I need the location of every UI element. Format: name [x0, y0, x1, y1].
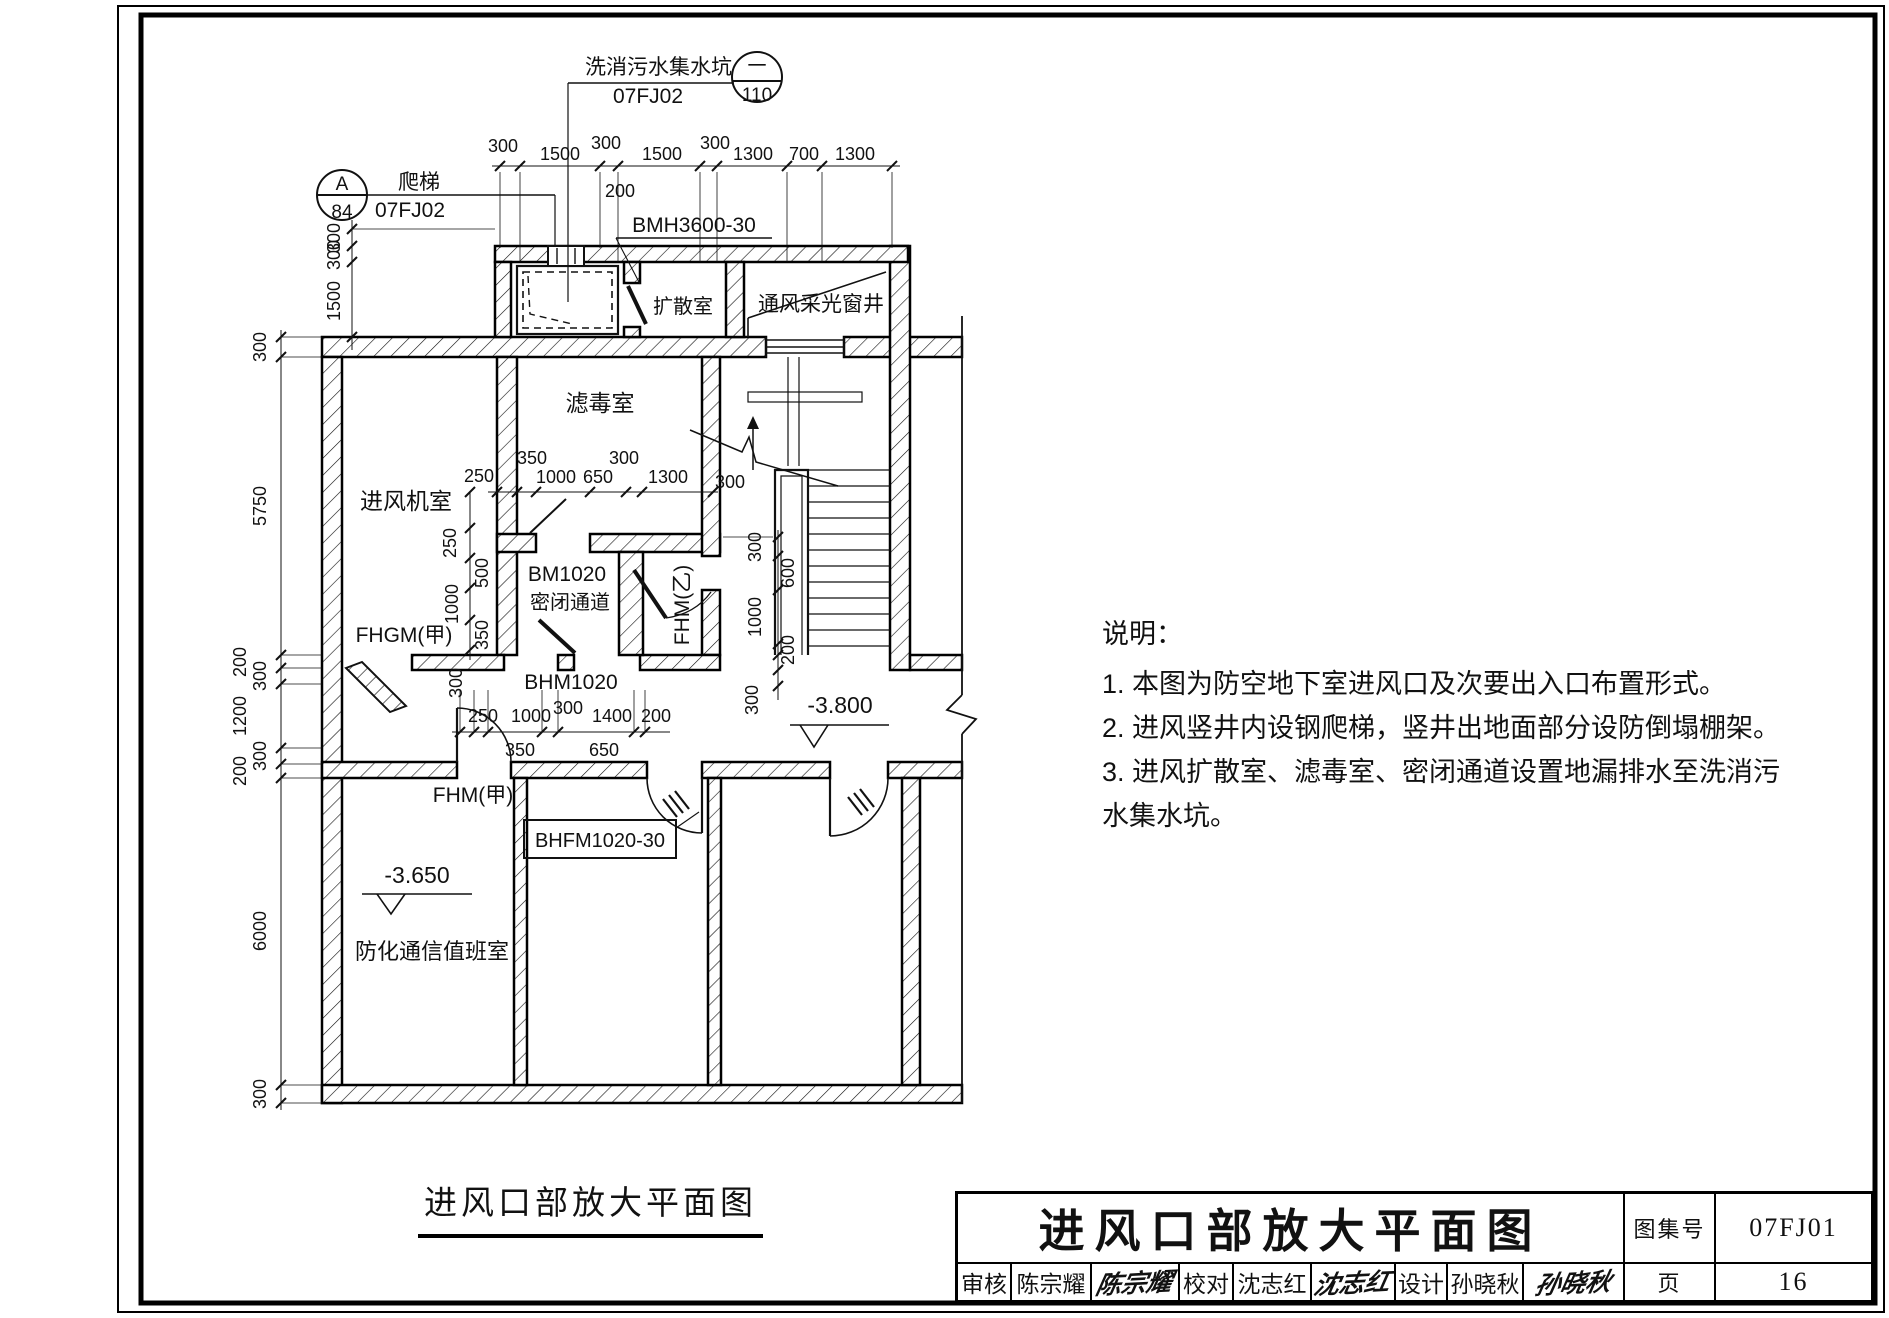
dim-corridor-sub-1: 650 [589, 740, 619, 760]
dim-corridor-sub-0: 350 [505, 740, 535, 760]
dim-corridor-0: 250 [468, 706, 498, 726]
wall-shaft-right-b [624, 327, 640, 337]
plan-caption: 进风口部放大平面图 [418, 1176, 763, 1238]
wall-left [322, 357, 342, 1103]
wall-corridor-bottom-b [511, 762, 647, 778]
dim-top-2: 300 [591, 133, 621, 153]
dim-top-7: 1300 [835, 144, 875, 164]
dim-chain-stair: 300 600 1000 200 300 [723, 530, 798, 715]
page-label: 页 [1625, 1264, 1716, 1300]
wall-top-left [322, 337, 766, 357]
label-fhm-b: FHM(乙) [671, 565, 694, 645]
dim-filter-wall: 300 [715, 472, 745, 492]
note-line-1: 1. 本图为防空地下室进风口及次要出入口布置形式。 [1102, 662, 1792, 706]
label-fhm-a: FHM(甲) [433, 784, 513, 807]
dim-filter-3: 650 [583, 467, 613, 487]
wall-shaft-left [495, 262, 511, 337]
ladder-label: 爬梯 [398, 171, 440, 194]
walls [322, 246, 962, 1103]
dim-left-8: 300 [250, 1079, 270, 1109]
notes-block: 说明： 1. 本图为防空地下室进风口及次要出入口布置形式。 2. 进风竖井内设钢… [1102, 612, 1792, 838]
door-room3 [830, 778, 888, 836]
page-number: 16 [1716, 1264, 1871, 1300]
dim-left-2: 200 [230, 647, 250, 677]
callout-ladder: A 84 爬梯 07FJ02 [317, 170, 555, 246]
dim-passage-wall: 300 [446, 668, 466, 698]
note-line-3: 3. 进风扩散室、滤毒室、密闭通道设置地漏排水至洗消污 [1102, 750, 1792, 794]
dim-top-0: 300 [488, 136, 518, 156]
wall-corridor-top-b [558, 655, 574, 670]
dim-top-4: 300 [700, 133, 730, 153]
titleblock-title: 进风口部放大平面图 [958, 1194, 1625, 1262]
door-leaf-bm1020-upper [530, 499, 566, 533]
dim-left-4: 1200 [230, 696, 250, 736]
sump-bubble-num: 一 [747, 56, 766, 77]
dim-corridor-4: 200 [641, 706, 671, 726]
dim-left-3: 300 [250, 661, 270, 691]
door-leaf-bm1020-lower [539, 620, 575, 653]
label-fhgm-a: FHGM(甲) [356, 624, 453, 647]
wall-corridor-bottom-a [322, 762, 457, 778]
dim-chain-corridor: 250 1000 300 1400 200 350 650 [452, 690, 671, 760]
design-label: 设计 [1396, 1264, 1448, 1300]
dim-top-3: 1500 [642, 144, 682, 164]
ladder-bubble-den: 84 [331, 202, 353, 223]
wall-corridor-top-a [412, 655, 504, 670]
dim-left-5: 300 [250, 741, 270, 771]
dim-stair-1: 600 [778, 558, 798, 588]
dim-passage-1: 500 [472, 558, 492, 588]
reviewer-signature: 陈宗耀 [1092, 1264, 1180, 1300]
wall-bottom [322, 1085, 962, 1103]
dim-filter-2: 1000 [536, 467, 576, 487]
review-label: 审核 [958, 1264, 1012, 1300]
dim-stair-3: 200 [778, 635, 798, 665]
designer-name: 孙晓秋 [1448, 1264, 1524, 1300]
break-line-right [947, 316, 976, 1103]
wall-partition-1 [514, 778, 527, 1085]
sump-label: 洗消污水集水坑 [585, 56, 732, 79]
ladder-bubble-num: A [336, 174, 349, 195]
dim-filter-5: 1300 [648, 467, 688, 487]
wall-corridor-bottom-d [888, 762, 962, 778]
dim-stair-wall: 300 [742, 685, 762, 715]
designer-signature: 孙晓秋 [1524, 1264, 1625, 1300]
room-passage: 密闭通道 [530, 591, 610, 614]
notes-heading: 说明： [1102, 612, 1792, 656]
room-fan: 进风机室 [360, 488, 452, 514]
dim-chain-shaft-left: 300 300 1500 [324, 220, 495, 350]
dim-filter-0: 250 [464, 466, 494, 486]
wall-right-lower [902, 778, 920, 1085]
dim-left-6: 200 [230, 756, 250, 786]
wall-filter-bottom-b [590, 534, 720, 552]
window-lightwell [766, 337, 844, 357]
label-bhm1020: BHM1020 [524, 671, 617, 694]
door-leaf-fhgm-a [346, 662, 406, 712]
wall-corridor-top-c [640, 655, 720, 670]
drawing-sheet: 洗消污水集水坑 07FJ02 一 110 A 84 爬梯 07FJ02 进风机室… [0, 0, 1889, 1318]
dim-passage-2: 1000 [442, 584, 462, 624]
dim-passage-3: 350 [472, 620, 492, 650]
check-label: 校对 [1180, 1264, 1234, 1300]
dim-chain-top: 300 1500 300 1500 300 1300 700 1300 200 [488, 133, 900, 262]
dim-filter-4: 300 [609, 448, 639, 468]
title-block: 进风口部放大平面图 图集号 07FJ01 审核 陈宗耀 陈宗耀 校对 沈志红 沈… [955, 1191, 1874, 1303]
reviewer-name: 陈宗耀 [1012, 1264, 1092, 1300]
dim-stair-0: 300 [745, 532, 765, 562]
level-corridor: -3.800 [807, 692, 872, 718]
door-leaf-bmh3600 [628, 286, 646, 324]
dim-left-0: 300 [250, 332, 270, 362]
atlas-number-value: 07FJ01 [1716, 1194, 1871, 1262]
dim-top-sub: 200 [605, 181, 635, 201]
atlas-number-label: 图集号 [1625, 1194, 1716, 1262]
dim-top-6: 700 [789, 144, 819, 164]
sump-ref: 07FJ02 [613, 85, 683, 108]
wall-fanroom-right [497, 357, 517, 655]
room-diffusion: 扩散室 [653, 295, 713, 318]
room-lightwell: 通风采光窗井 [758, 293, 884, 316]
ladder-ref: 07FJ02 [375, 199, 445, 222]
sump-bubble-den: 110 [742, 85, 772, 106]
wall-stair-left-a [702, 357, 720, 556]
room-filter: 滤毒室 [566, 390, 635, 416]
wall-partition-2 [708, 778, 721, 1085]
ladder-recess [548, 246, 584, 266]
dim-shaft-left-1: 300 [324, 240, 344, 270]
dim-corridor-2: 300 [553, 698, 583, 718]
dim-stair-2: 1000 [745, 597, 765, 637]
wall-diffusion-well-divider [726, 262, 744, 337]
dim-filter-1: 350 [517, 448, 547, 468]
label-bhfm: BHFM1020-30 [535, 830, 665, 852]
dim-left-7: 6000 [250, 911, 270, 951]
room-duty: 防化通信值班室 [355, 939, 509, 964]
checker-name: 沈志红 [1234, 1264, 1312, 1300]
door-room2 [647, 778, 702, 833]
wall-passage-right [619, 552, 643, 655]
level-room: -3.650 [384, 862, 449, 888]
dim-passage-0: 250 [440, 528, 460, 558]
note-line-2: 2. 进风竖井内设钢爬梯，竖井出地面部分设防倒塌棚架。 [1102, 706, 1792, 750]
dim-left-1: 5750 [250, 486, 270, 526]
wall-corridor-top-d [910, 655, 962, 670]
shaft-dashed-diagonal [528, 276, 572, 324]
wall-corridor-bottom-c [702, 762, 830, 778]
wall-stair-right [890, 246, 910, 670]
staircase [748, 357, 890, 655]
dim-top-1: 1500 [540, 144, 580, 164]
label-bm1020: BM1020 [528, 563, 606, 586]
checker-signature: 沈志红 [1312, 1264, 1396, 1300]
wall-filter-bottom-a [497, 534, 536, 552]
label-bmh3600: BMH3600-30 [632, 214, 756, 237]
dim-shaft-left-2: 1500 [324, 281, 344, 321]
plan-details [346, 246, 976, 1103]
dim-top-5: 1300 [733, 144, 773, 164]
dim-chain-left: 300 5750 200 300 1200 300 200 6000 300 [230, 330, 322, 1110]
dim-corridor-1: 1000 [511, 706, 551, 726]
note-line-4: 水集水坑。 [1102, 794, 1792, 838]
dim-corridor-3: 1400 [592, 706, 632, 726]
